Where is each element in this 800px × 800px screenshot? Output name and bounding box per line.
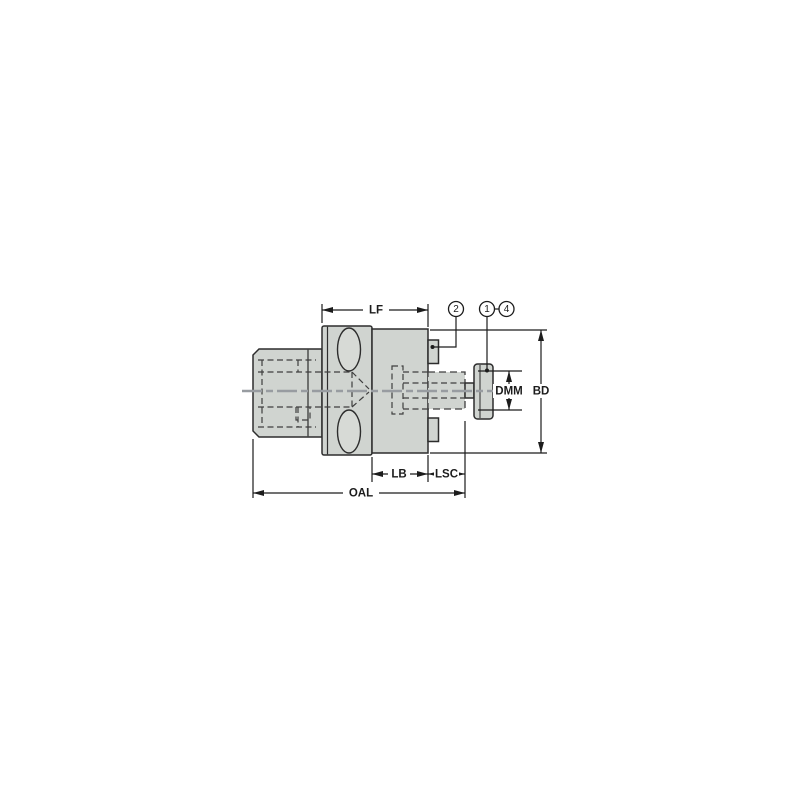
arrowhead — [506, 399, 512, 410]
arrowhead — [538, 330, 544, 341]
dimension-lsc-label: LSC — [435, 469, 458, 481]
drive-key-top — [428, 340, 439, 364]
shank-rear-block — [253, 349, 322, 437]
arrowhead — [322, 307, 333, 313]
dimension-lf: LF — [322, 303, 428, 327]
dimension-oal-label: OAL — [349, 488, 373, 500]
arrowhead — [506, 371, 512, 382]
callout-dot-2 — [431, 345, 435, 349]
callout-label-1: 1 — [484, 304, 490, 315]
flange-slot-top — [338, 328, 361, 371]
arrowhead — [454, 490, 465, 496]
callout-label-2: 2 — [453, 304, 459, 315]
dimension-lb-label: LB — [391, 469, 406, 481]
callout-label-4: 4 — [504, 304, 510, 315]
dimension-lf-label: LF — [369, 305, 383, 317]
arrowhead — [253, 490, 264, 496]
callout-dot-1 — [485, 369, 489, 373]
arrowhead — [538, 442, 544, 453]
dimension-dmm-label: DMM — [495, 386, 522, 398]
arrowhead — [417, 471, 428, 477]
arrowhead — [417, 307, 428, 313]
dimension-lb: LB — [372, 455, 428, 482]
drawing-canvas: LF LB LSC OAL DMM — [0, 0, 800, 800]
technical-drawing: LF LB LSC OAL DMM — [0, 0, 800, 800]
callouts: 2 1 4 — [431, 302, 515, 373]
arrowhead — [372, 471, 383, 477]
flange-slot-bottom — [338, 410, 361, 453]
dimension-bd-label: BD — [533, 386, 550, 398]
drive-key-bottom — [428, 418, 439, 442]
